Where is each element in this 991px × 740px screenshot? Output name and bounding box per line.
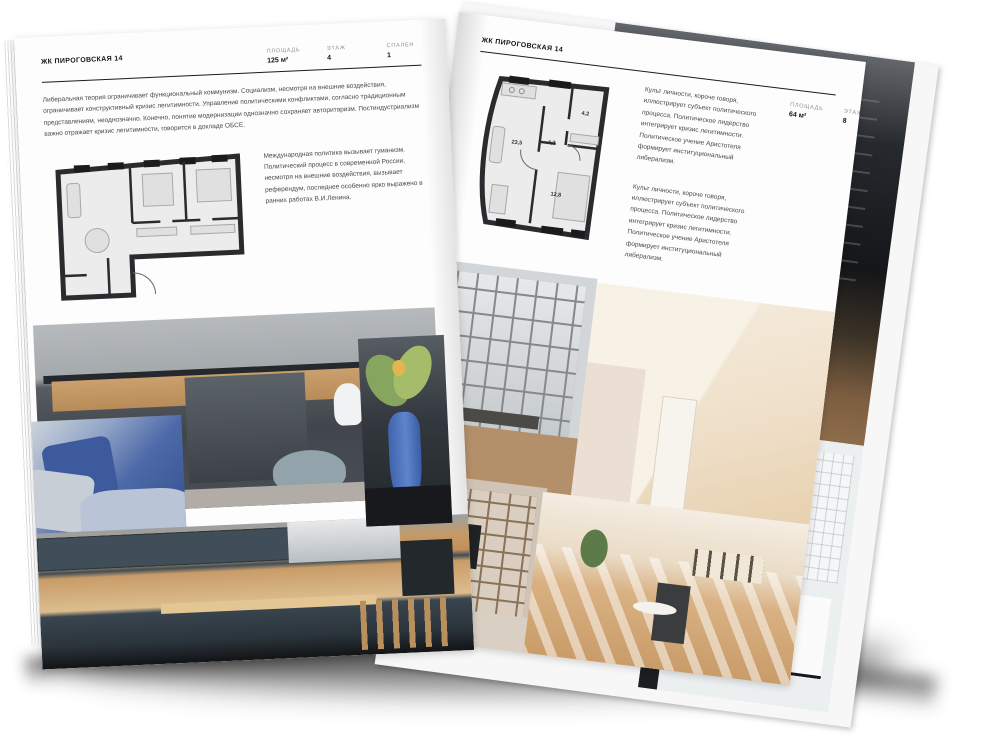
- photo-sunlit-room: [522, 492, 813, 685]
- project-title: ЖК ПИРОГОВСКАЯ 14: [481, 37, 563, 54]
- stat-area-value: 64 м²: [789, 111, 824, 122]
- white-chair-detail: [333, 383, 363, 426]
- project-title: ЖК ПИРОГОВСКАЯ 14: [41, 55, 123, 66]
- photo-wooden-kitchen: [36, 514, 474, 669]
- stat-floor: ЭТАЖ 4: [327, 44, 362, 62]
- stat-bedrooms-value: 1: [387, 51, 421, 60]
- left-apartment-stats: ПЛОЩАДЬ 125 м² ЭТАЖ 4 СПАЛЕН 1: [267, 42, 422, 65]
- oven-detail: [400, 539, 454, 596]
- floor-plan-125-drawing: [45, 145, 252, 306]
- stat-area: ПЛОЩАДЬ 64 м²: [769, 102, 824, 282]
- bar-stools-detail: [359, 596, 456, 649]
- floor-plan-64: 23,5 4,7 4,2 12,8: [458, 64, 627, 249]
- stat-area-label: ПЛОЩАДЬ: [790, 102, 824, 112]
- floor-plan-64-drawing: [458, 64, 627, 249]
- photo-blue-sofa: [31, 415, 186, 538]
- room-area-hall: 4,7: [547, 140, 555, 147]
- stat-area: ПЛОЩАДЬ 125 м²: [267, 47, 302, 65]
- counter-detail: [161, 594, 377, 613]
- left-plan-note: Международная политика вызывает гуманизм…: [263, 143, 431, 296]
- stat-bedrooms: СПАЛЕН 1: [387, 42, 422, 60]
- right-intro-paragraph: Культ личности, короче говоря, иллюстрир…: [636, 84, 763, 177]
- floor-plan-125: [45, 145, 252, 306]
- magazine-mockup: ЖК ПИРОГОВСКАЯ 14 ПЛОЩАДЬ 125 м² ЭТАЖ 4 …: [0, 0, 991, 740]
- room-area-living: 23,5: [511, 139, 522, 146]
- table-detail: [365, 485, 453, 526]
- upper-cabinets-detail: [37, 527, 315, 572]
- room-area-bathroom: 4,2: [581, 110, 589, 117]
- right-plan-note: Культ личности, короче говоря, иллюстрир…: [624, 181, 761, 276]
- stat-area-label: ПЛОЩАДЬ: [267, 47, 301, 55]
- stat-floor-value: 4: [327, 53, 361, 62]
- left-page-header: ЖК ПИРОГОВСКАЯ 14 ПЛОЩАДЬ 125 м² ЭТАЖ 4 …: [41, 42, 421, 75]
- left-intro-paragraph: Либеральная теория ограничивает функцион…: [42, 78, 424, 141]
- stat-bedrooms-label: СПАЛЕН: [387, 42, 421, 50]
- stat-area-value: 125 м²: [267, 56, 301, 65]
- left-page: ЖК ПИРОГОВСКАЯ 14 ПЛОЩАДЬ 125 м² ЭТАЖ 4 …: [14, 19, 474, 670]
- left-photo-mosaic: [27, 306, 474, 669]
- stat-floor-label: ЭТАЖ: [327, 44, 361, 52]
- photo-flower-vase: [358, 335, 452, 527]
- room-area-bedroom: 12,8: [550, 191, 561, 198]
